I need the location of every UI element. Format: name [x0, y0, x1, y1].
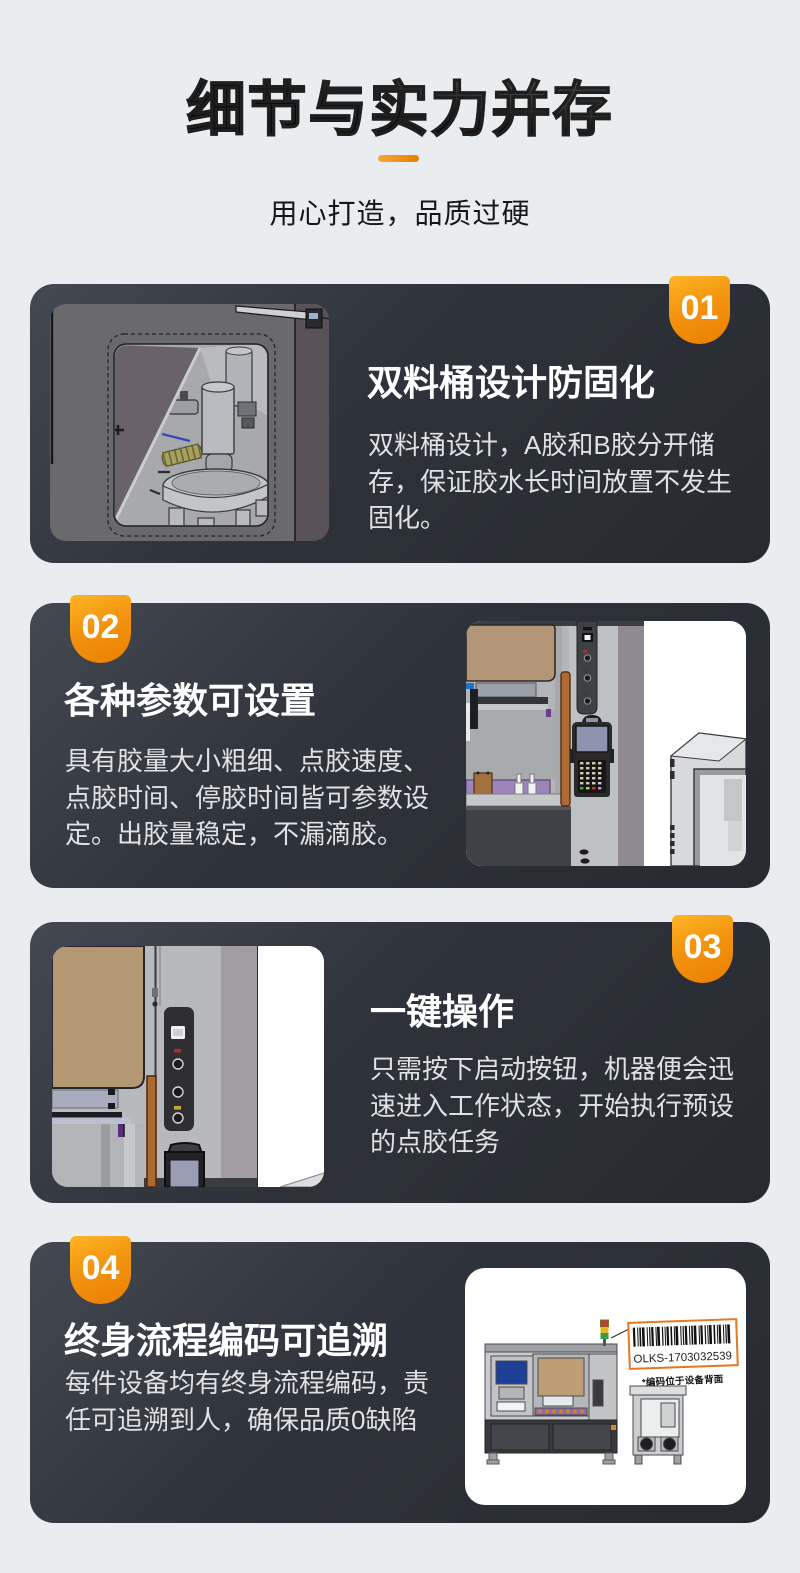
svg-text:*编码位于设备背面: *编码位于设备背面: [642, 1373, 724, 1389]
